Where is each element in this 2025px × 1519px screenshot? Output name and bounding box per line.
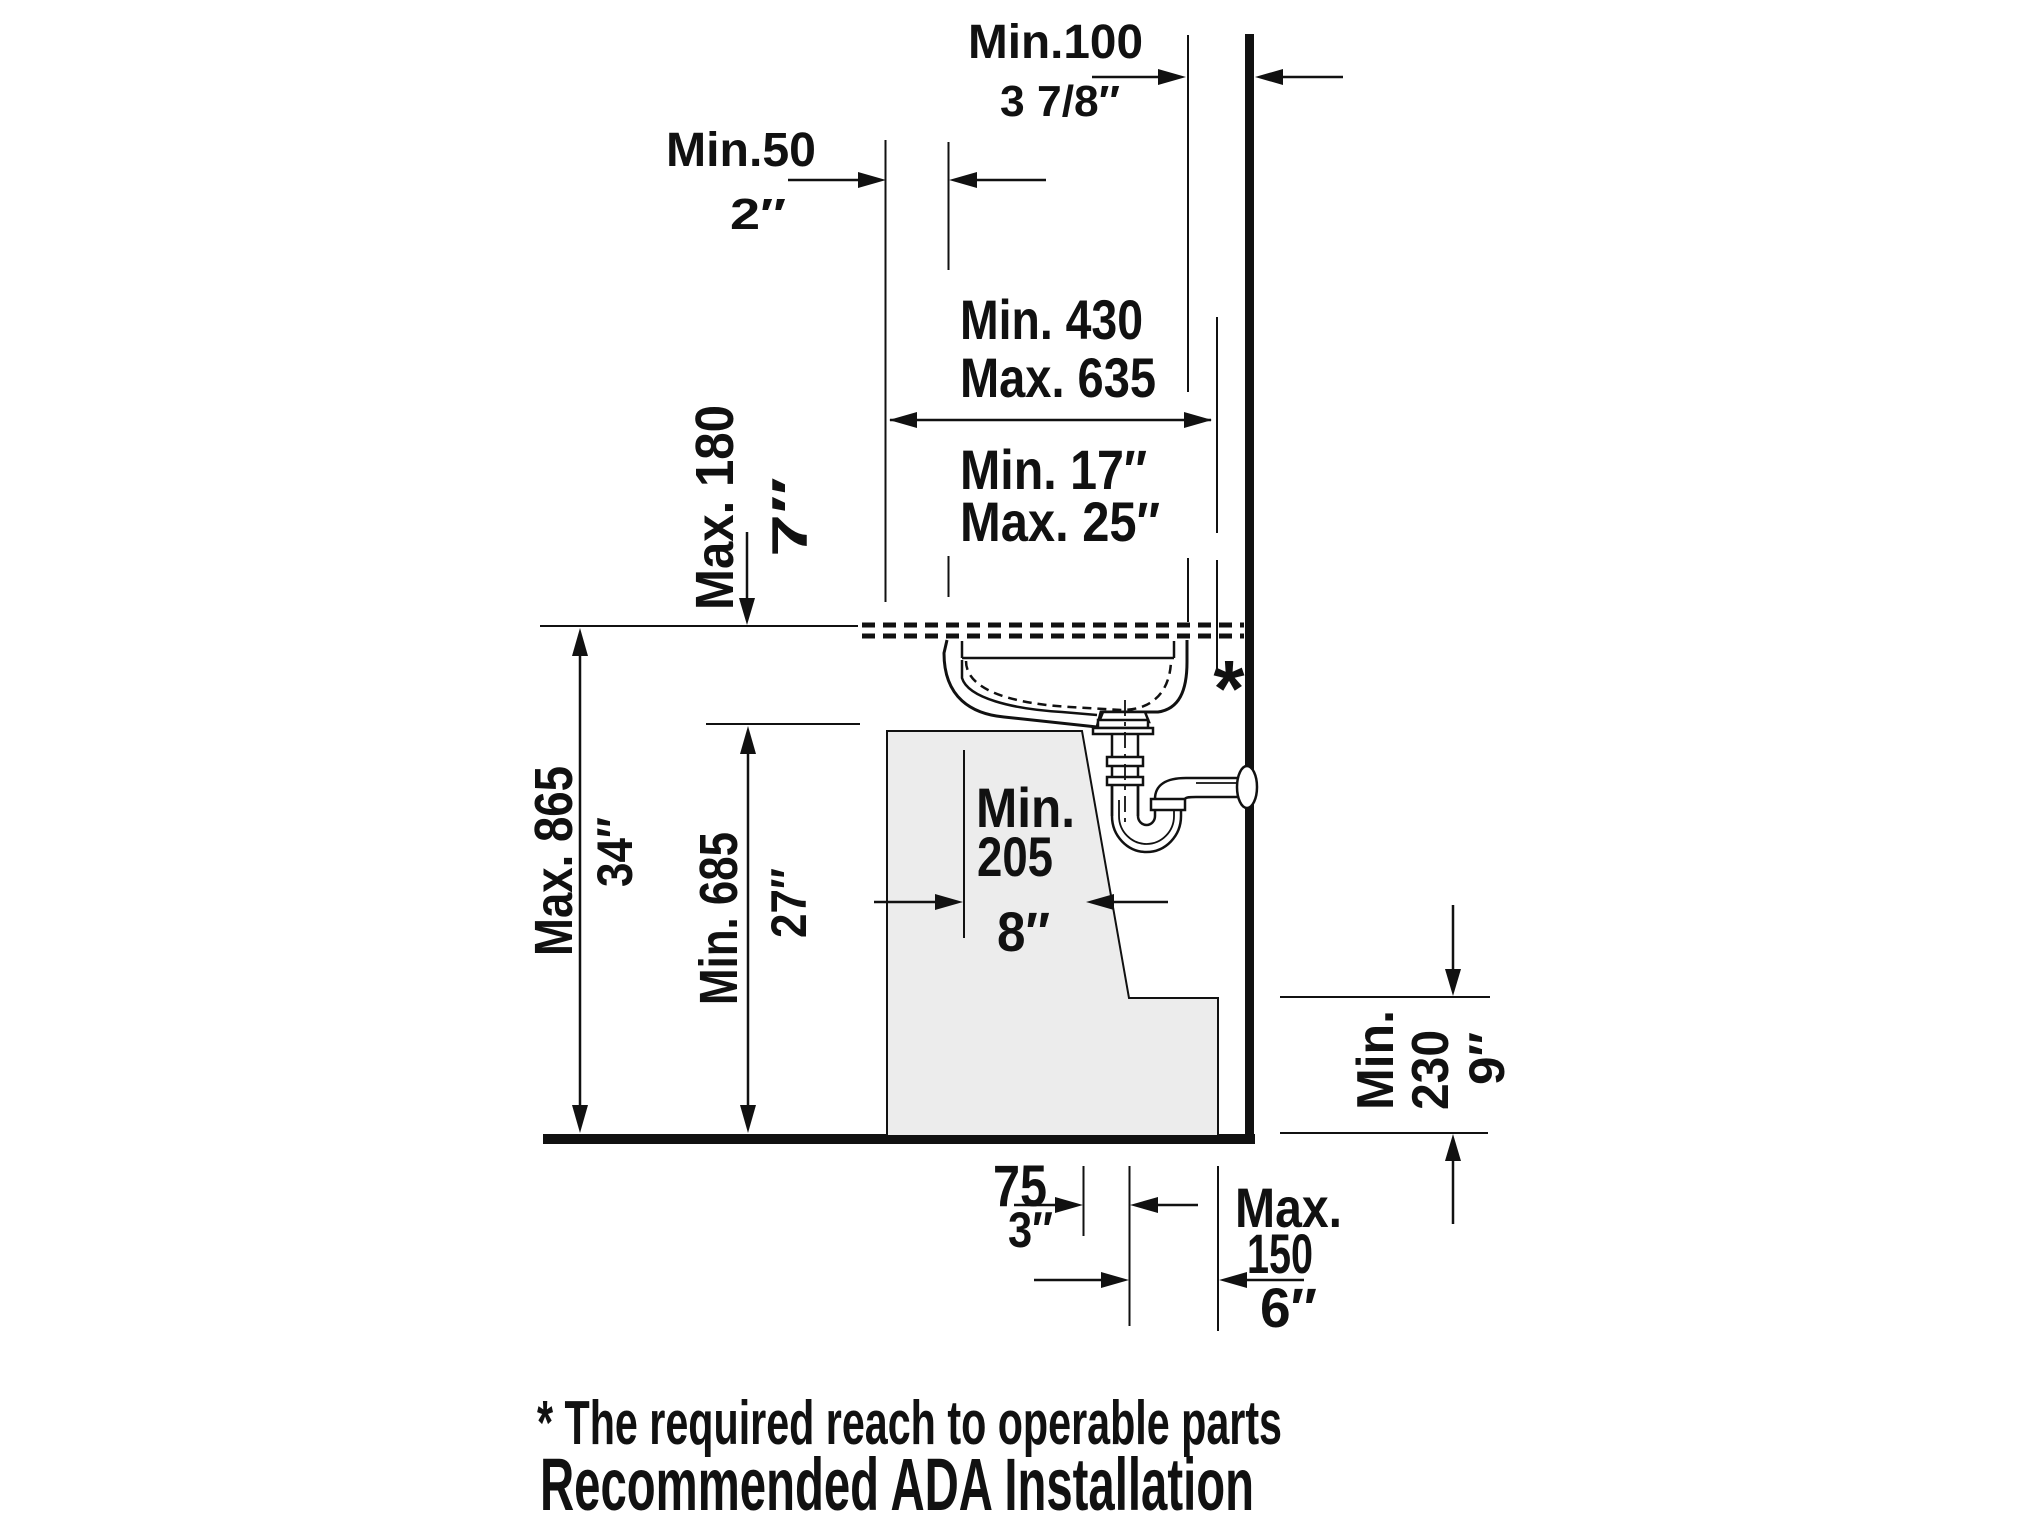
- countertop: [540, 625, 1244, 636]
- dim-label-metric: Min. 685: [689, 832, 749, 1005]
- dim-label-metric-value: 230: [1402, 1030, 1460, 1110]
- dim-label-imperial: 6″: [1260, 1276, 1317, 1339]
- dim-label-imperial: 2″: [730, 190, 786, 239]
- dim-knee-clearance: Min. 685 27″: [689, 726, 817, 1133]
- dim-toe-depth: Max. 150 6″: [1034, 1176, 1342, 1339]
- arrow-up-icon: [740, 726, 756, 754]
- arrow-down-icon: [572, 1105, 588, 1133]
- dim-label-imperial: 8″: [997, 900, 1050, 963]
- arrow-right-icon: [1184, 412, 1212, 428]
- ada-installation-diagram: Min.100 3 7/8″ Min.50 2″ Min. 430 Max. 6…: [0, 0, 2025, 1519]
- wall: [1245, 34, 1254, 1144]
- dim-label-imperial: 27″: [761, 868, 817, 938]
- dim-wall-clearance: Min.100 3 7/8″: [968, 16, 1343, 126]
- dim-label-imperial: 3″: [1008, 1202, 1053, 1258]
- dim-label-metric: Min.50: [666, 124, 816, 177]
- diagram-canvas: Min.100 3 7/8″ Min.50 2″ Min. 430 Max. 6…: [0, 0, 2025, 1519]
- dim-rim-height: Max. 865 34″: [524, 628, 643, 1133]
- dim-label-imperial-max: Max. 25″: [960, 490, 1160, 553]
- dim-label-imperial: 3 7/8″: [1000, 77, 1120, 126]
- dim-label-metric: Max. 180: [685, 405, 745, 610]
- dim-apron-drop: Max. 180 7″: [685, 405, 818, 625]
- trap-arm-bottom: [1185, 797, 1240, 799]
- drain-flange-lower: [1093, 728, 1153, 734]
- dim-label-metric-word: Min.: [1347, 1010, 1405, 1110]
- dim-label-imperial: 34″: [587, 817, 643, 887]
- trap-coupling: [1151, 799, 1185, 810]
- trap-outer-curve: [1112, 786, 1181, 852]
- arrow-up-icon: [1445, 1134, 1461, 1161]
- arrow-up-icon: [572, 628, 588, 656]
- sink-outer-profile: [944, 640, 1187, 727]
- arrow-right-icon: [1055, 1197, 1083, 1213]
- dim-overhang: Min.50 2″: [666, 124, 1046, 239]
- reach-asterisk: *: [1213, 644, 1245, 733]
- dim-toe-offset: 75 3″: [993, 1154, 1198, 1258]
- dim-label-imperial: 9″: [1459, 1032, 1515, 1085]
- page-title: Recommended ADA Installation: [540, 1443, 1254, 1519]
- dim-label-metric-value: 205: [977, 825, 1053, 888]
- wall-escutcheon: [1237, 766, 1257, 808]
- arrow-right-icon: [1101, 1272, 1129, 1288]
- arrow-right-icon: [858, 172, 886, 188]
- dim-label-metric: Min.100: [968, 16, 1143, 69]
- dim-toe-clearance: Min. 230 9″: [1347, 905, 1515, 1224]
- arrow-left-icon: [889, 412, 917, 428]
- arrow-left-icon: [1255, 69, 1283, 85]
- dim-label-metric: Max. 865: [524, 766, 584, 956]
- arrow-down-icon: [740, 1105, 756, 1133]
- arrow-left-icon: [1130, 1197, 1158, 1213]
- dim-label-metric-min: Min. 430: [960, 288, 1143, 351]
- sink: [944, 640, 1187, 727]
- arrow-down-icon: [1445, 969, 1461, 996]
- dim-label-metric-max: Max. 635: [960, 346, 1156, 409]
- arrow-left-icon: [1219, 1272, 1247, 1288]
- dim-reach: Min. 430 Max. 635 Min. 17″ Max. 25″: [889, 288, 1212, 553]
- arrow-right-icon: [1158, 69, 1186, 85]
- arrow-left-icon: [949, 172, 977, 188]
- dim-label-imperial: 7″: [762, 477, 818, 557]
